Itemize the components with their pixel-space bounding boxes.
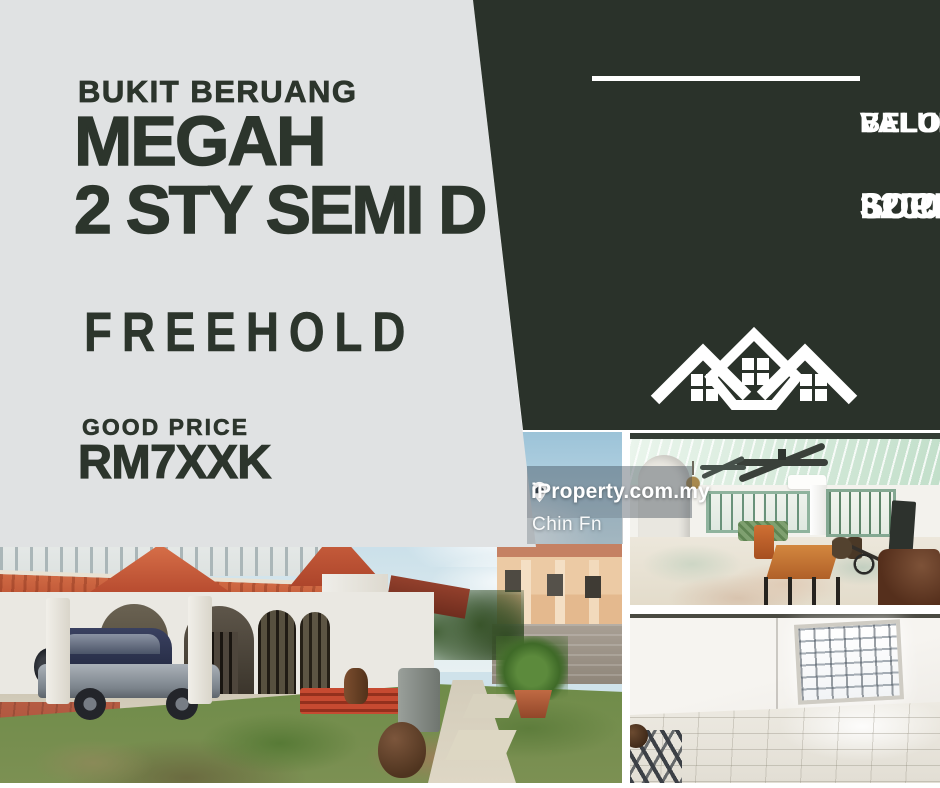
clay-jar — [344, 668, 368, 704]
banner-line: VALUE 8% — [860, 106, 940, 140]
property-type: 2 STY SEMI D — [74, 171, 485, 249]
wall-corner — [776, 618, 778, 718]
brand-watermark: iProperty.com.my — [531, 481, 548, 503]
empty-room-photo — [630, 614, 940, 783]
interior-hall-photo — [630, 433, 940, 605]
grille-arch — [300, 612, 330, 700]
brand-name: iProperty.com.my — [531, 480, 710, 504]
white-curtain — [810, 485, 826, 535]
suv-wheel — [74, 688, 106, 720]
divider-bar — [592, 76, 860, 81]
feature-line: LOCATION — [860, 190, 940, 223]
green-framed-windows — [826, 489, 896, 537]
ceiling-fan — [700, 465, 746, 470]
tenure-label: FREEHOLD — [84, 299, 415, 364]
table-legs — [764, 577, 842, 605]
porch-column — [188, 596, 212, 704]
clay-jar — [378, 722, 426, 778]
leather-couch — [878, 549, 940, 605]
orange-chair — [754, 525, 774, 559]
barred-window — [794, 619, 904, 704]
porch-column — [46, 598, 70, 704]
property-flyer: BUKIT BERUANG MEGAH 2 STY SEMI D FREEHOL… — [0, 0, 940, 788]
neighbour-windows — [505, 570, 521, 592]
grille-arch — [258, 610, 296, 700]
project-name: MEGAH — [74, 101, 325, 181]
houses-roofline-icon — [647, 326, 861, 414]
suv-window — [64, 634, 160, 654]
wooden-table — [766, 545, 840, 579]
agent-name: Chin Fn — [532, 514, 602, 536]
ceiling-edge — [630, 614, 940, 618]
ceiling-fan — [736, 459, 828, 466]
price-value: RM7XXK — [78, 434, 271, 489]
